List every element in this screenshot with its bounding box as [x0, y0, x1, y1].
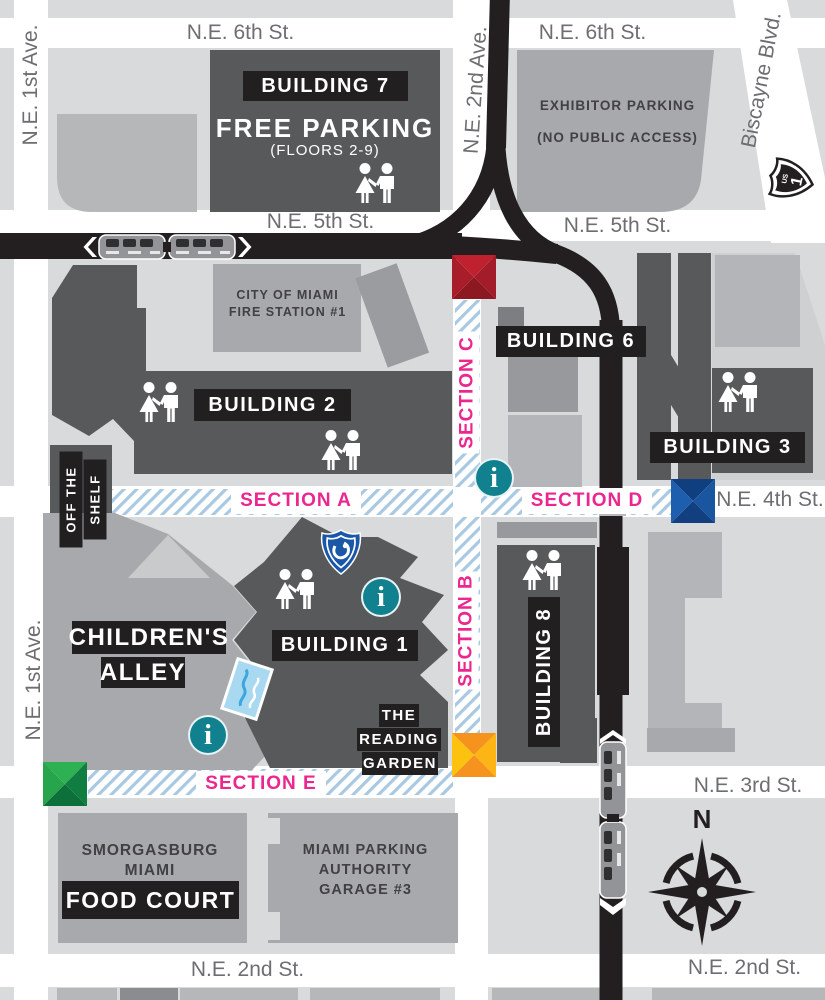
building-notched-shape — [648, 532, 722, 752]
metromover-station — [597, 547, 629, 695]
street-label-ne-6th-left: N.E. 6th St. — [168, 21, 313, 45]
building-7-free-parking-label: FREE PARKING — [215, 113, 435, 144]
gate-marker-orange[interactable] — [452, 733, 496, 777]
street-ne-6th — [0, 18, 825, 48]
reading-garden-badge-line3: GARDEN — [362, 752, 438, 775]
reading-garden-badge-line1: THE — [379, 704, 419, 727]
compass-north-label: N — [686, 804, 718, 835]
street-south-stub — [455, 798, 488, 1000]
building-east-block — [715, 255, 800, 347]
building-2-badge: BUILDING 2 — [194, 389, 351, 421]
building-7-badge: BUILDING 7 — [243, 71, 408, 101]
compass-rose-icon — [648, 838, 756, 946]
street-label-ne-1st-ave-top: N.E. 1st Ave. — [19, 10, 43, 160]
building-slanted-shape — [355, 263, 429, 367]
gate-marker-red[interactable] — [452, 255, 496, 299]
food-court-badge: FOOD COURT — [62, 881, 239, 919]
off-the-shelf-badge-line2: SHELF — [84, 460, 107, 540]
street-label-ne-6th-right: N.E. 6th St. — [520, 21, 665, 45]
bottom-building-2 — [120, 988, 178, 1000]
garage-notch-top — [268, 818, 280, 844]
fire-station-label-line1: CITY OF MIAMI — [210, 288, 365, 302]
building-mid-block-a — [508, 357, 578, 412]
building-8-annex — [497, 522, 597, 538]
book-fair-map: US 1 N.E. 6th St. N.E. 6th St. N.E. 5th … — [0, 0, 825, 1000]
building-small-dark — [560, 718, 597, 763]
road-ne-2nd-ave-north — [496, 0, 500, 148]
smorgasburg-label-line1: SMORGASBURG — [70, 842, 230, 860]
section-d-label: SECTION D — [522, 488, 652, 514]
building-mid-block-b — [508, 415, 582, 487]
building-mid-block-nub — [498, 307, 524, 327]
childrens-alley-badge-line1: CHILDREN'S — [72, 621, 226, 654]
bottom-building-5 — [492, 988, 612, 1000]
street-label-ne-3rd: N.E. 3rd St. — [678, 774, 818, 798]
exhibitor-parking-label-line1: EXHIBITOR PARKING — [530, 98, 705, 113]
metromover-train-vertical-icon — [600, 730, 626, 915]
street-label-ne-2nd-st-left: N.E. 2nd St. — [175, 958, 320, 982]
garage-label-line3: GARAGE #3 — [288, 882, 443, 898]
exhibitor-parking-label-line2: (NO PUBLIC ACCESS) — [530, 130, 705, 145]
off-the-shelf-badge-line1: OFF THE — [60, 452, 83, 548]
gate-marker-green[interactable] — [43, 762, 87, 806]
bottom-building-4 — [310, 988, 440, 1000]
reading-garden-badge-line2: READING — [357, 728, 441, 751]
street-label-ne-2nd-st-right: N.E. 2nd St. — [672, 956, 817, 980]
section-c-label: SECTION C — [455, 332, 480, 454]
garage-label-line1: MIAMI PARKING — [288, 842, 443, 858]
fire-station-label-line2: FIRE STATION #1 — [210, 305, 365, 319]
building-small-medium — [647, 728, 735, 752]
street-label-ne-4th: N.E. 4th St. — [700, 488, 825, 512]
building-1-badge: BUILDING 1 — [272, 630, 418, 661]
childrens-alley-badge-line2: ALLEY — [101, 657, 185, 688]
section-a-label: SECTION A — [231, 488, 361, 514]
garage-notch-bottom — [268, 912, 280, 940]
info-icon[interactable]: i — [188, 715, 228, 755]
building-8-badge: BUILDING 8 — [528, 597, 560, 747]
bottom-building-1 — [57, 988, 117, 1000]
info-icon[interactable]: i — [474, 458, 514, 498]
garage-label-line2: AUTHORITY — [288, 862, 443, 878]
road-merge — [452, 246, 557, 254]
parking-garage-shape — [268, 813, 458, 943]
building-3-badge: BUILDING 3 — [650, 432, 805, 463]
section-b-label: SECTION B — [454, 572, 479, 690]
street-label-ne-1st-ave-bottom: N.E. 1st Ave. — [22, 605, 46, 755]
building-block-northwest — [57, 114, 197, 212]
building-6-badge: BUILDING 6 — [496, 326, 646, 357]
bottom-building-6 — [652, 988, 825, 1000]
building-7-floors-label: (FLOORS 2-9) — [215, 142, 435, 159]
street-label-ne-5th-left: N.E. 5th St. — [248, 210, 393, 234]
section-e-label: SECTION E — [196, 771, 326, 797]
bottom-building-3 — [180, 988, 298, 1000]
street-label-ne-5th-right: N.E. 5th St. — [545, 214, 690, 238]
info-icon[interactable]: i — [361, 577, 401, 617]
smorgasburg-label-line2: MIAMI — [70, 862, 230, 880]
